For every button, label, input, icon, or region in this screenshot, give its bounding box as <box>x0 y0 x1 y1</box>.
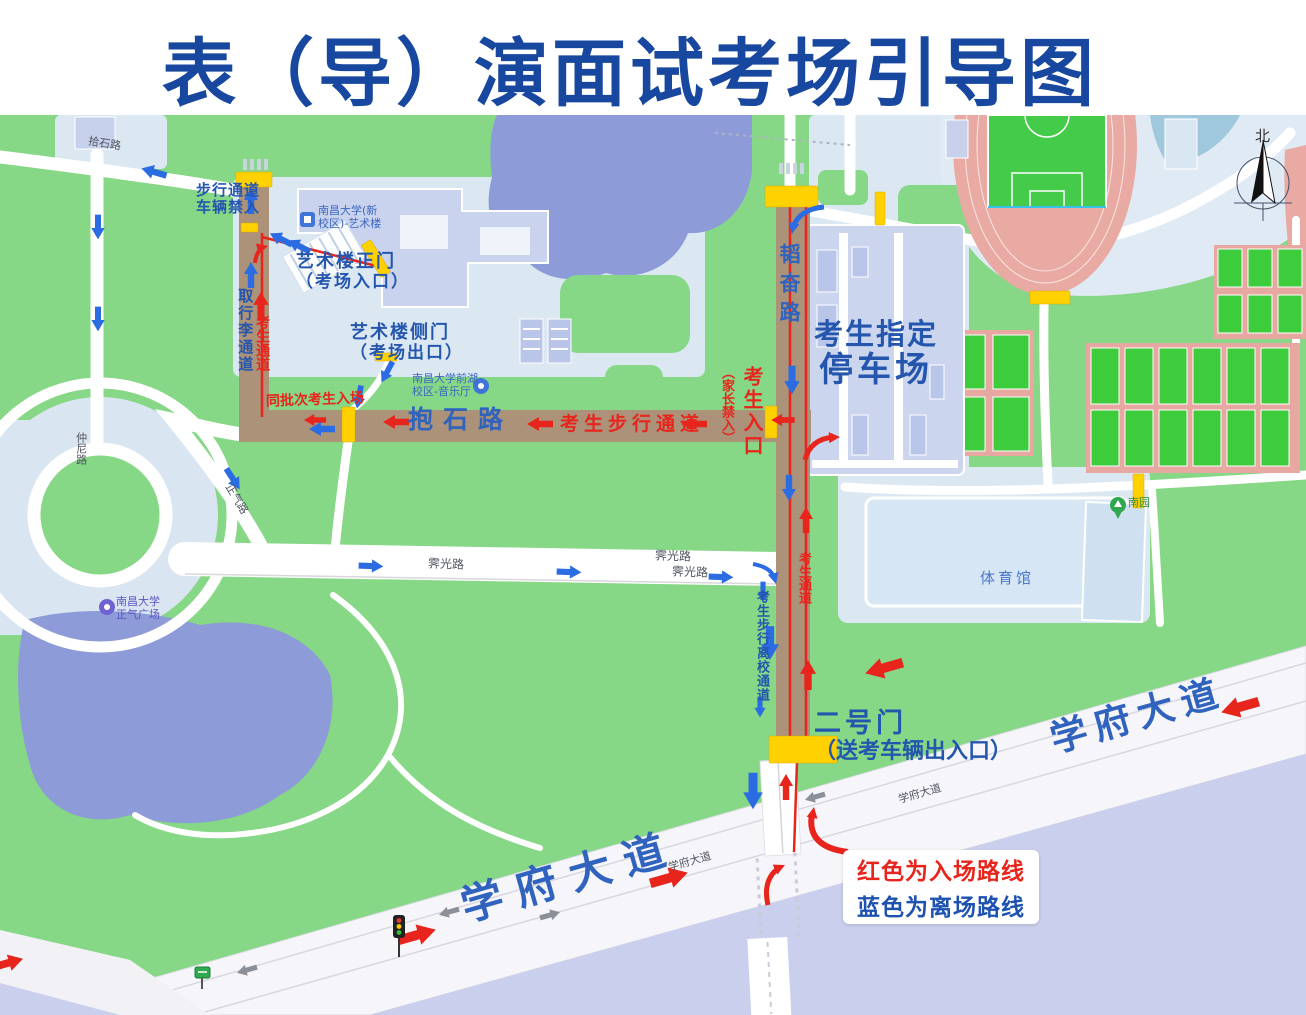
art-building-poi-label: 南昌大学(新 校区)-艺术楼 <box>318 205 381 230</box>
leave-corridor-label: 考生步行离校通道 <box>753 590 768 702</box>
art-building-poi-line2: 校区)-艺术楼 <box>318 218 381 231</box>
candidate-walk-corridor-label: 考生步行通道 <box>560 414 704 436</box>
luggage-corridor-label: 取行李通道 <box>236 288 253 373</box>
gate2-line2: （送考车辆出入口） <box>814 739 1012 764</box>
road-label-baoshi: 抱石路 <box>408 406 513 435</box>
nanyuan-label: 南园 <box>1128 497 1150 510</box>
zhengqi-square-poi-line1: 南昌大学 <box>116 596 160 609</box>
legend-red-route: 红色为入场路线 <box>843 852 1039 886</box>
walk-no-vehicle-line2: 车辆禁入 <box>196 199 260 216</box>
zhengqi-square-poi-label: 南昌大学 正气广场 <box>116 596 160 621</box>
parking-line2: 停车场 <box>813 351 939 390</box>
tennis-courts <box>1214 245 1306 339</box>
road-label-taofen: 韬奋路 <box>777 243 801 330</box>
walk-no-vehicle-label: 步行通道 车辆禁入 <box>196 182 260 217</box>
parking-label: 考生指定 停车场 <box>813 318 939 390</box>
parking-line1: 考生指定 <box>813 318 939 351</box>
side-door-line2: （考场出口） <box>350 344 464 364</box>
main-gate-line1: 艺术楼正门 <box>296 252 410 273</box>
main-gate-line2: （考场入口） <box>296 273 410 293</box>
side-door-line1: 艺术楼侧门 <box>350 323 464 344</box>
main-gate-label: 艺术楼正门 （考场入口） <box>296 252 410 292</box>
side-door-label: 艺术楼侧门 （考场出口） <box>350 323 464 363</box>
road-label-jiguang-1: 霁光路 <box>428 557 464 572</box>
swimming-pool <box>1082 502 1146 622</box>
concert-hall-poi-label: 南昌大学前湖 校区-音乐厅 <box>412 373 478 398</box>
same-batch-entry-label: 同批次考生入场 <box>266 390 365 410</box>
road-label-zhongni: 仲尼路 <box>74 432 87 465</box>
map-canvas <box>0 115 1306 1015</box>
basketball-courts <box>944 330 1300 473</box>
concert-hall-poi-line2: 校区-音乐厅 <box>412 386 478 399</box>
concert-hall-poi-line1: 南昌大学前湖 <box>412 373 478 386</box>
legend-blue-route: 蓝色为离场路线 <box>843 888 1039 922</box>
gym-label: 体育馆 <box>980 570 1034 587</box>
art-building-poi-line1: 南昌大学(新 <box>318 205 381 218</box>
road-label-jiguang-2: 霁光路 <box>655 549 691 564</box>
zhengqi-square-poi-line2: 正气广场 <box>116 609 160 622</box>
legend-box: 红色为入场路线 蓝色为离场路线 <box>843 850 1039 924</box>
north-label: 北 <box>1255 128 1270 145</box>
candidate-corridor-left-label: 考生通道 <box>254 315 270 371</box>
road-label-jiguang-3: 霁光路 <box>672 565 708 580</box>
walk-no-vehicle-line1: 步行通道 <box>196 182 260 199</box>
gate2-line1: 二号门 <box>814 708 1012 739</box>
candidate-entrance-label: 考生入口 <box>740 366 763 458</box>
candidate-corridor-right-label: 考生通道 <box>795 552 810 604</box>
page-title: 表（导）演面试考场引导图 <box>50 14 1210 121</box>
gate2-label: 二号门 （送考车辆出入口） <box>814 708 1012 764</box>
guide-map-page: 表（导）演面试考场引导图 拾石路 仲尼路 正气路 霁光路 霁光路 霁光路 抱石路… <box>0 0 1306 1015</box>
parents-forbidden-label: （家长禁入） <box>718 366 733 444</box>
